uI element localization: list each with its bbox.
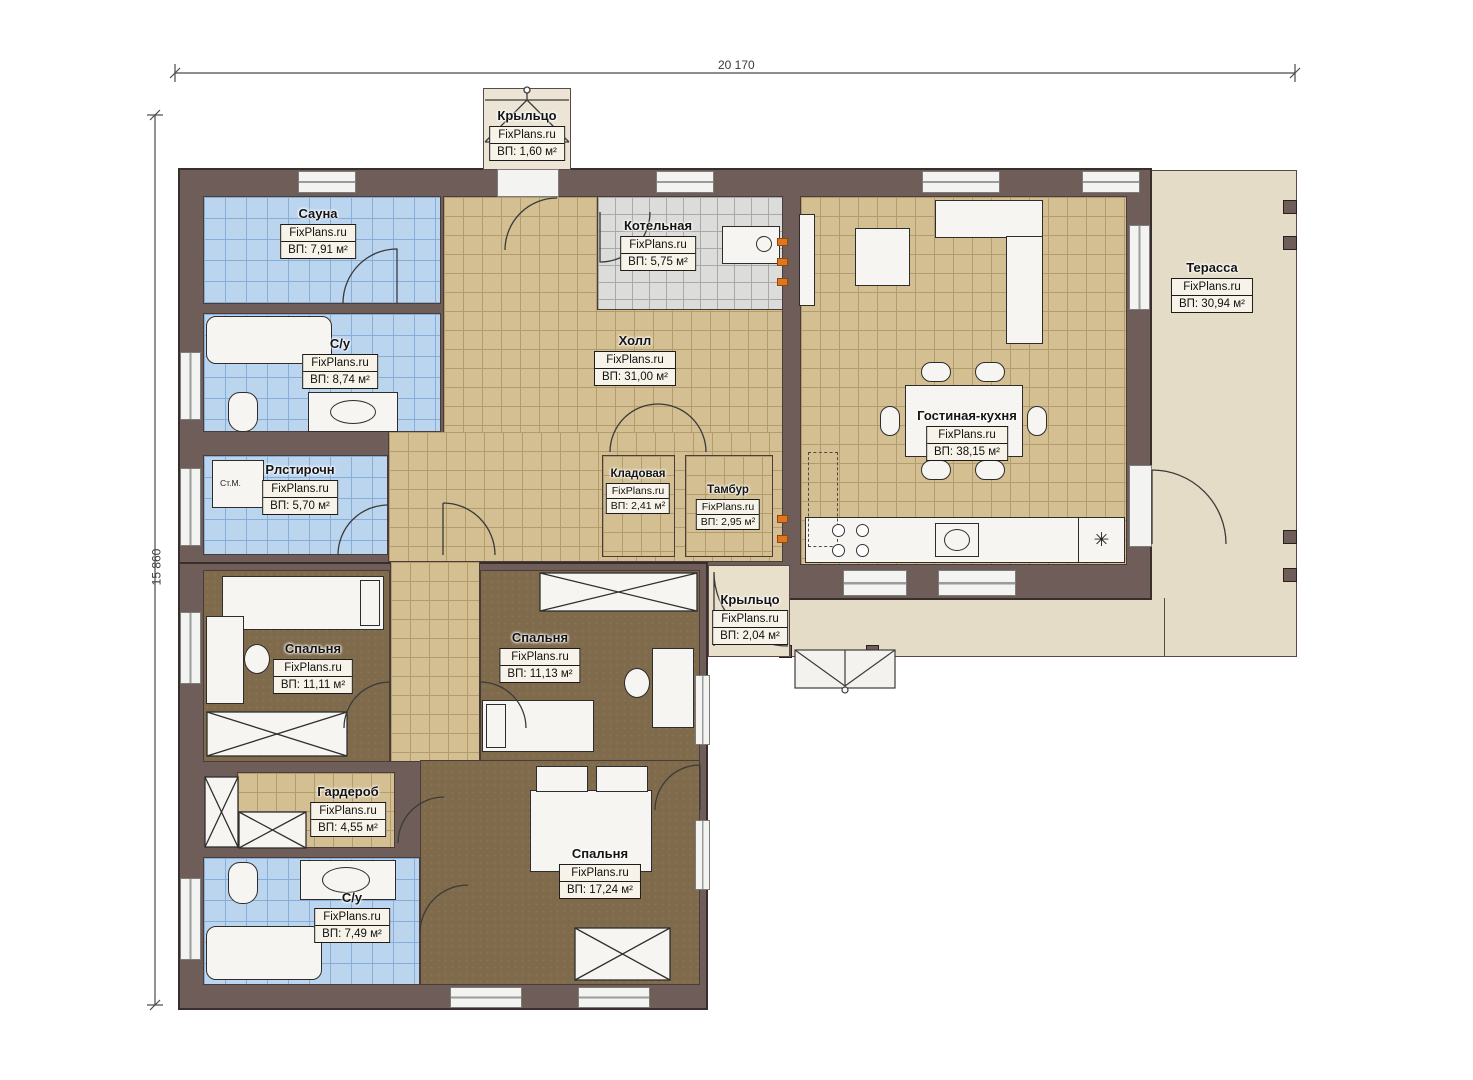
window (656, 171, 714, 193)
brand-watermark: FixPlans.ru (303, 355, 377, 371)
terrace-post (1283, 530, 1297, 544)
brand-watermark: FixPlans.ru (560, 865, 640, 881)
room-area: ВП: 2,41 м² (607, 498, 669, 513)
window (922, 171, 1000, 193)
room-label-bedroom-3: Спальня FixPlans.ru ВП: 17,24 м² (559, 846, 641, 899)
desk (206, 616, 244, 704)
coffee-table (855, 228, 910, 286)
chair (975, 362, 1005, 382)
sofa-vertical (1006, 236, 1043, 344)
room-area: ВП: 31,00 м² (595, 368, 675, 385)
vent-shaft (799, 214, 815, 306)
room-area: ВП: 4,55 м² (311, 819, 385, 836)
room-label-bedroom-2: Спальня FixPlans.ru ВП: 11,13 м² (499, 630, 580, 683)
room-area: ВП: 38,15 м² (927, 443, 1007, 460)
room-name: Крыльцо (712, 592, 788, 607)
pillow (360, 580, 380, 626)
toilet (228, 392, 258, 432)
window (695, 820, 710, 890)
window (180, 468, 201, 546)
brand-watermark: FixPlans.ru (713, 611, 787, 627)
window (298, 171, 356, 193)
room-area: ВП: 2,95 м² (697, 514, 759, 529)
room-label-hall: Холл FixPlans.ru ВП: 31,00 м² (594, 333, 676, 386)
sink-bowl (330, 400, 376, 424)
pillow (486, 704, 506, 748)
window (938, 570, 1016, 596)
stove-burner (832, 544, 845, 557)
room-name: Тамбур (696, 484, 760, 496)
room-name: Холл (594, 333, 676, 348)
chair (975, 460, 1005, 480)
window (180, 878, 201, 960)
terrace-post (1283, 236, 1297, 250)
room-name: С/у (314, 890, 390, 905)
brand-watermark: FixPlans.ru (490, 127, 564, 143)
floor-living-kitchen (800, 196, 1127, 565)
room-label-porch-top: Крыльцо FixPlans.ru ВП: 1,60 м² (489, 108, 565, 161)
room-area: ВП: 11,11 м² (274, 676, 352, 693)
room-area: ВП: 1,60 м² (490, 143, 564, 160)
brand-watermark: FixPlans.ru (595, 352, 675, 368)
brand-watermark: FixPlans.ru (315, 909, 389, 925)
room-label-boiler: Котельная FixPlans.ru ВП: 5,75 м² (620, 218, 696, 271)
front-door-opening-top (497, 169, 559, 197)
bathtub (206, 926, 322, 980)
radiator (777, 535, 788, 543)
window (450, 987, 522, 1008)
room-name: Гардероб (310, 784, 386, 799)
brand-watermark: FixPlans.ru (927, 427, 1007, 443)
window (843, 570, 907, 596)
floor-plan-canvas: 20 170 15 860 (0, 0, 1473, 1080)
chair (921, 362, 951, 382)
brand-watermark: FixPlans.ru (263, 481, 337, 497)
room-label-terrace: Терасса FixPlans.ru ВП: 30,94 м² (1171, 260, 1253, 313)
dimension-width-label: 20 170 (718, 58, 755, 72)
kitchen-sink-bowl (944, 529, 970, 551)
room-label-laundry: Рлстирочн FixPlans.ru ВП: 5,70 м² (262, 462, 338, 515)
room-name: Спальня (499, 630, 580, 645)
stove-burner (856, 524, 869, 537)
radiator (777, 258, 788, 266)
radiator (777, 238, 788, 246)
stove-burner (832, 524, 845, 537)
room-area: ВП: 30,94 м² (1172, 295, 1252, 312)
window (180, 612, 201, 684)
room-label-bathroom-1: С/у FixPlans.ru ВП: 8,74 м² (302, 336, 378, 389)
fridge-symbol: ✳ (1094, 529, 1110, 552)
room-label-pantry: Кладовая FixPlans.ru ВП: 2,41 м² (606, 468, 670, 514)
pillow (596, 766, 648, 792)
radiator (777, 278, 788, 286)
brand-watermark: FixPlans.ru (621, 237, 695, 253)
room-area: ВП: 5,70 м² (263, 497, 337, 514)
room-label-living-kitchen: Гостиная-кухня FixPlans.ru ВП: 38,15 м² (917, 408, 1017, 461)
room-name: Котельная (620, 218, 696, 233)
room-area: ВП: 5,75 м² (621, 253, 695, 270)
window (695, 675, 710, 745)
brand-watermark: FixPlans.ru (1172, 279, 1252, 295)
room-label-bathroom-2: С/у FixPlans.ru ВП: 7,49 м² (314, 890, 390, 943)
terrace-post (1283, 568, 1297, 582)
window (1129, 225, 1150, 310)
room-area: ВП: 17,24 м² (560, 881, 640, 898)
window (1082, 171, 1140, 193)
room-name: Спальня (273, 641, 353, 656)
terrace-door-opening (1129, 465, 1152, 547)
brand-watermark: FixPlans.ru (500, 649, 579, 665)
toilet (228, 862, 258, 904)
room-label-porch-bottom: Крыльцо FixPlans.ru ВП: 2,04 м² (712, 592, 788, 645)
room-name: Сауна (280, 206, 356, 221)
room-area: ВП: 7,91 м² (281, 241, 355, 258)
sofa-horizontal (935, 200, 1043, 238)
desk (652, 648, 694, 728)
room-area: ВП: 11,13 м² (500, 665, 579, 682)
brand-watermark: FixPlans.ru (607, 484, 669, 498)
boiler-dial (756, 236, 772, 252)
window (578, 987, 650, 1008)
terrace-post (1283, 200, 1297, 214)
washing-machine-label: Ст.М. (220, 478, 241, 488)
brand-watermark: FixPlans.ru (311, 803, 385, 819)
room-name: Терасса (1171, 260, 1253, 275)
window (180, 352, 201, 420)
room-label-sauna: Сауна FixPlans.ru ВП: 7,91 м² (280, 206, 356, 259)
fridge: ✳ (1078, 517, 1125, 563)
room-area: ВП: 2,04 м² (713, 627, 787, 644)
radiator (777, 515, 788, 523)
chair (1027, 406, 1047, 436)
room-area: ВП: 8,74 м² (303, 371, 377, 388)
terrace-post (866, 645, 879, 658)
terrace-floor-right (1147, 170, 1297, 657)
stove-burner (856, 544, 869, 557)
desk-chair (624, 668, 650, 698)
room-name: Гостиная-кухня (917, 408, 1017, 423)
brand-watermark: FixPlans.ru (697, 500, 759, 514)
room-name: Кладовая (606, 468, 670, 480)
chair (880, 406, 900, 436)
room-area: ВП: 7,49 м² (315, 925, 389, 942)
room-label-wardrobe: Гардероб FixPlans.ru ВП: 4,55 м² (310, 784, 386, 837)
pillow (536, 766, 588, 792)
brand-watermark: FixPlans.ru (274, 660, 352, 676)
floor-corridor (390, 562, 480, 762)
room-name: Крыльцо (489, 108, 565, 123)
desk-chair (244, 644, 270, 674)
room-name: Спальня (559, 846, 641, 861)
room-name: Рлстирочн (262, 462, 338, 477)
room-name: С/у (302, 336, 378, 351)
room-label-bedroom-1: Спальня FixPlans.ru ВП: 11,11 м² (273, 641, 353, 694)
dimension-height-label: 15 860 (149, 549, 163, 586)
chair (921, 460, 951, 480)
room-label-vestibule: Тамбур FixPlans.ru ВП: 2,95 м² (696, 484, 760, 530)
brand-watermark: FixPlans.ru (281, 225, 355, 241)
